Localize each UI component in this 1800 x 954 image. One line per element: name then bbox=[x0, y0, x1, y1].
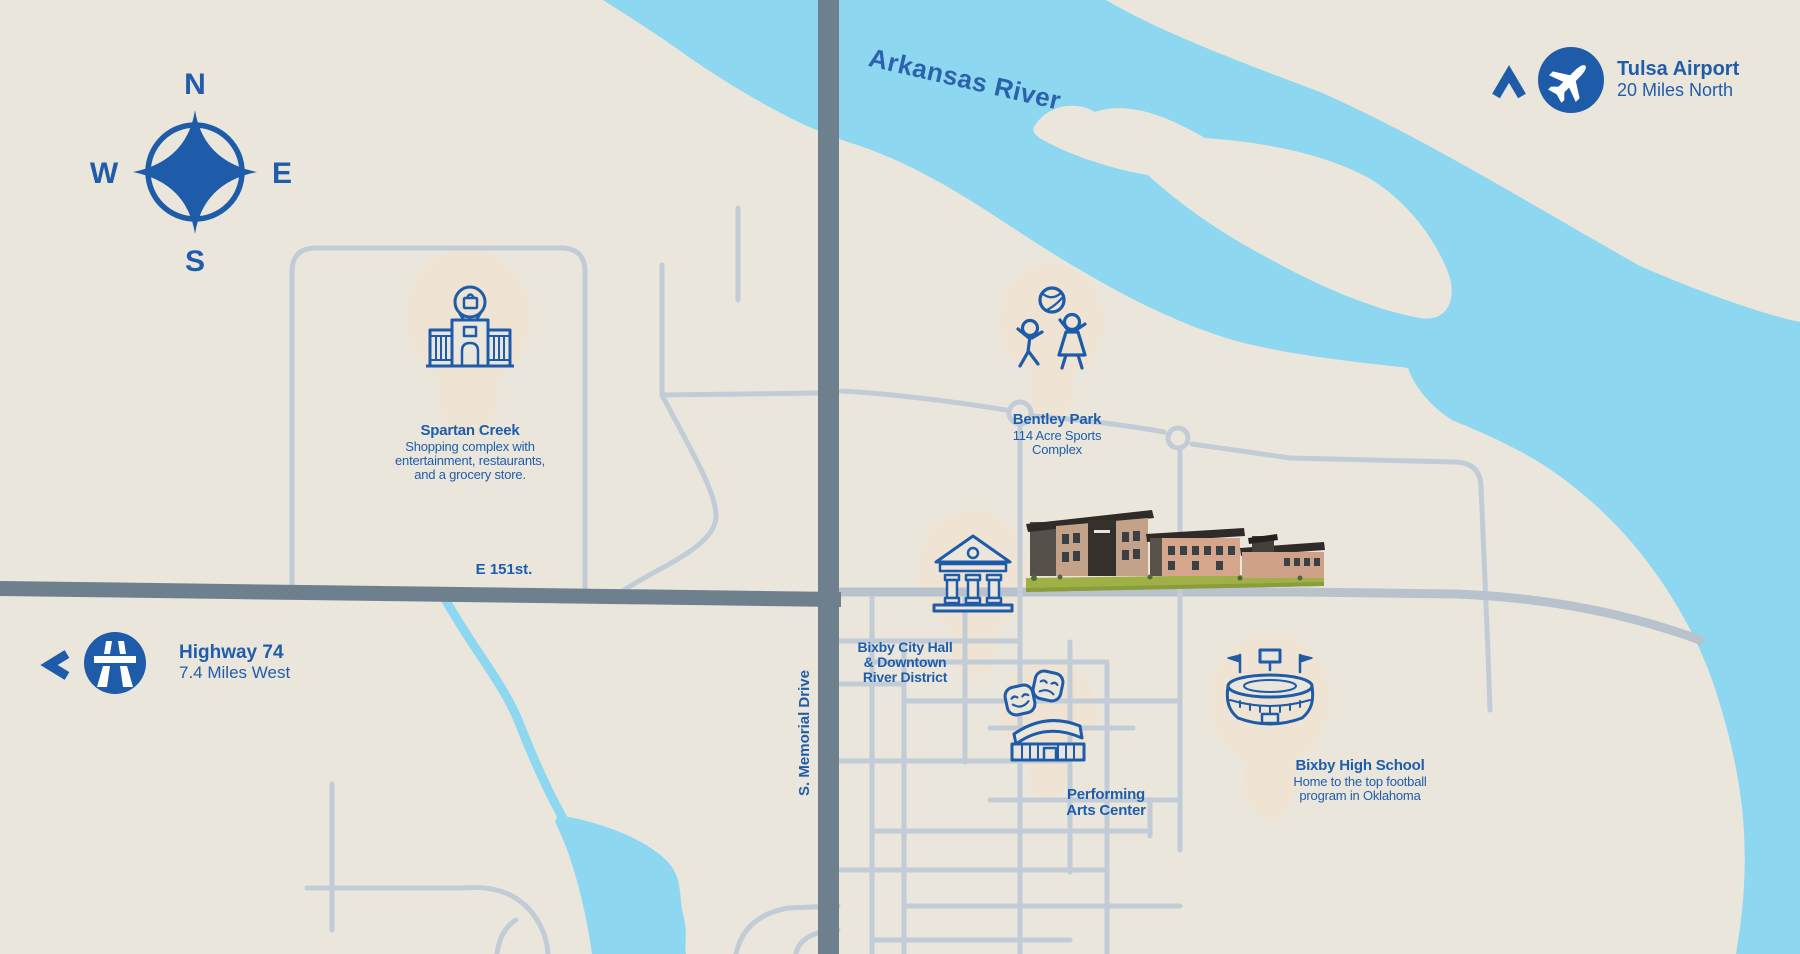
tulsa-airport-marker bbox=[1496, 47, 1604, 113]
tulsa-airport-title: Tulsa Airport bbox=[1617, 59, 1739, 81]
bentley-park-desc: Complex bbox=[1013, 443, 1102, 457]
high-school-desc: program in Oklahoma bbox=[1293, 789, 1426, 803]
creek bbox=[444, 597, 565, 822]
high-school-desc: Home to the top football bbox=[1293, 775, 1426, 789]
bentley-park-desc: 114 Acre Sports bbox=[1013, 429, 1102, 443]
high-school-title: Bixby High School bbox=[1295, 758, 1424, 774]
north-chevron-icon bbox=[1496, 74, 1522, 96]
compass-south-label: S bbox=[185, 246, 205, 278]
memorial-drive-road-label: S. Memorial Drive bbox=[797, 670, 813, 796]
motorway-icon bbox=[84, 632, 146, 694]
airplane-icon bbox=[1538, 47, 1604, 113]
highway-74-title: Highway 74 bbox=[179, 643, 284, 664]
spartan-creek-desc: and a grocery store. bbox=[395, 468, 545, 482]
compass-west-label: W bbox=[90, 158, 118, 190]
performing-arts-title: Performing bbox=[1066, 787, 1146, 803]
city-hall-title: River District bbox=[857, 670, 952, 685]
road-e151st bbox=[0, 581, 841, 607]
development-rendering bbox=[1026, 510, 1325, 592]
pond bbox=[555, 815, 686, 954]
bentley-park-title: Bentley Park bbox=[1013, 412, 1101, 428]
road-s-memorial-drive bbox=[818, 0, 839, 954]
e151st-road-label: E 151st. bbox=[476, 562, 533, 578]
bixby-area-illustrated-map: N E S W Arkansas River Tulsa Airport 20 … bbox=[0, 0, 1800, 954]
city-hall-title: Bixby City Hall bbox=[857, 640, 952, 655]
spartan-creek-title: Spartan Creek bbox=[420, 423, 519, 439]
map-canvas bbox=[0, 0, 1800, 954]
performing-arts-title: Arts Center bbox=[1066, 803, 1146, 819]
highway-74-subtitle: 7.4 Miles West bbox=[179, 664, 290, 682]
compass-east-label: E bbox=[272, 158, 292, 190]
highway-74-marker bbox=[49, 632, 146, 694]
tulsa-airport-subtitle: 20 Miles North bbox=[1617, 81, 1733, 100]
spartan-creek-desc: Shopping complex with bbox=[395, 440, 545, 454]
west-chevron-icon bbox=[49, 654, 67, 676]
spartan-creek-desc: entertainment, restaurants, bbox=[395, 454, 545, 468]
compass-rose-icon bbox=[133, 110, 257, 234]
compass-north-label: N bbox=[184, 69, 206, 101]
city-hall-title: & Downtown bbox=[857, 655, 952, 670]
